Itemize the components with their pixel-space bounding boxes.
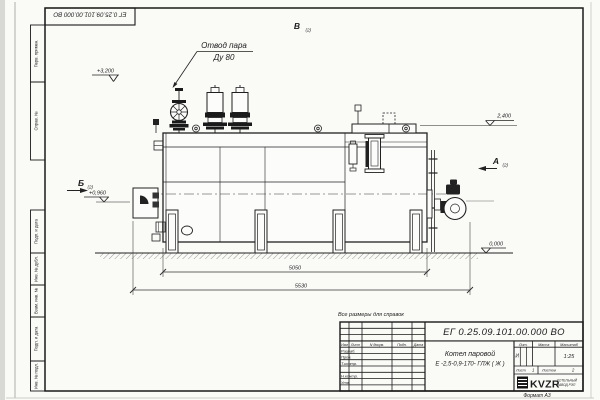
lit-header: Лит. bbox=[518, 343, 528, 347]
col-doc: N докум. bbox=[370, 343, 385, 347]
product-name: Котел паровой bbox=[445, 350, 495, 358]
row-tkontr: Т.контр. bbox=[341, 361, 357, 366]
company-name-line2: ЗАВОД РЭП bbox=[557, 383, 576, 387]
margin-cell-podp-data-2: Подп. и дата bbox=[34, 326, 39, 351]
svg-text:2,400: 2,400 bbox=[496, 114, 512, 120]
drawing-canvas: ЕГ 0.25.09.101.00.000 ВО Перв. примен. С… bbox=[0, 0, 600, 400]
mass-header: Масса bbox=[538, 343, 549, 347]
margin-cell-vzam-inv: Взам. инв. № bbox=[34, 288, 39, 314]
reference-note: Все размеры для справок bbox=[338, 312, 404, 318]
svg-text:+3,200: +3,200 bbox=[97, 69, 115, 75]
product-designation: Е -2,5-0,9-170- ГЛЖ ( Ж ) bbox=[435, 362, 504, 368]
margin-cell-perv-primen: Перв. примен. bbox=[34, 40, 39, 68]
top-stamp-doc-number: ЕГ 0.25.09.101.00.000 ВО bbox=[53, 10, 126, 17]
company-name-line1: КОТЕЛЬНЫЙ bbox=[557, 379, 578, 383]
row-utv: Утв. bbox=[341, 380, 350, 385]
callout-text-line2: Ду 80 bbox=[213, 53, 235, 62]
col-sign: Подп. bbox=[397, 343, 407, 347]
margin-cell-sprav-no: Справ. № bbox=[34, 111, 39, 131]
ground-hatch bbox=[100, 254, 478, 260]
view-marker-a-sub: (2) bbox=[503, 163, 509, 168]
safety-valve-1 bbox=[203, 85, 227, 133]
scanned-drawing-sheet: ЕГ 0.25.09.101.00.000 ВО Перв. примен. С… bbox=[0, 0, 600, 400]
boiler-shell bbox=[163, 133, 427, 242]
row-nkontr: Н.контр. bbox=[341, 374, 358, 379]
row-razrab: Разраб. bbox=[341, 348, 355, 353]
dim-5050: 5050 bbox=[289, 266, 302, 272]
sheet-value: 1 bbox=[532, 368, 534, 373]
format-note: Формат А3 bbox=[523, 393, 551, 399]
sheet-label: Лист bbox=[515, 369, 526, 373]
dim-5530: 5530 bbox=[295, 284, 308, 290]
view-marker-v-sub: (2) bbox=[306, 28, 312, 33]
safety-valve-2 bbox=[228, 85, 252, 133]
margin-cell-podp-data-1: Подп. и дата bbox=[34, 218, 39, 243]
view-marker-b-sub: (2) bbox=[88, 185, 94, 190]
sheets-label: Листов bbox=[541, 369, 556, 373]
lifting-lug bbox=[153, 119, 159, 125]
titleblock-doc-number: ЕГ 0.25.09.101.00.000 ВО bbox=[443, 327, 565, 338]
svg-text:+0,960: +0,960 bbox=[89, 191, 107, 197]
company-logo-text: KVZR bbox=[530, 379, 560, 391]
view-marker-a: А bbox=[492, 156, 499, 166]
margin-cell-inv-dubl: Инв. № дубл. bbox=[34, 256, 39, 282]
row-prov: Пров. bbox=[341, 355, 352, 360]
view-marker-v: В bbox=[294, 21, 300, 31]
col-date: Дата bbox=[413, 343, 423, 347]
callout-text-line1: Отвод пара bbox=[201, 41, 247, 50]
col-list: Лист bbox=[350, 343, 360, 347]
lit-value: И bbox=[515, 354, 519, 360]
col-izm: Изм bbox=[341, 343, 348, 347]
scale-header: Масштаб bbox=[560, 343, 579, 347]
margin-cell-inv-podl: Инв. № подл. bbox=[34, 363, 39, 389]
svg-text:0,000: 0,000 bbox=[489, 242, 504, 248]
scale-value: 1:25 bbox=[564, 354, 576, 360]
view-marker-b: Б bbox=[78, 178, 84, 188]
